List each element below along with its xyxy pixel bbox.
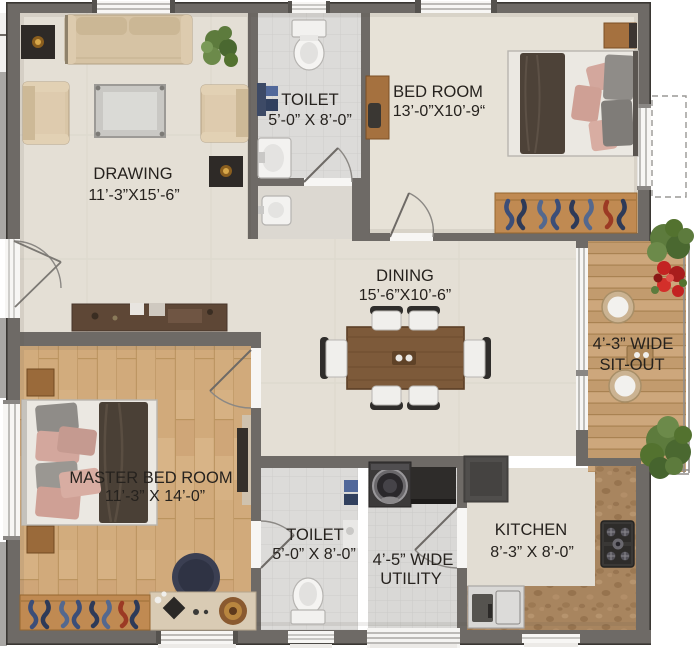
svg-text:4’-3” WIDE: 4’-3” WIDE xyxy=(593,335,674,353)
svg-text:11’-3”X15’-6”: 11’-3”X15’-6” xyxy=(88,187,179,204)
svg-text:DINING: DINING xyxy=(376,267,434,285)
svg-text:BED ROOM: BED ROOM xyxy=(393,83,483,101)
svg-text:5’-0” X 8’-0”: 5’-0” X 8’-0” xyxy=(268,112,352,129)
svg-text:11’-3” X 14’-0”: 11’-3” X 14’-0” xyxy=(105,488,205,505)
svg-text:MASTER BED ROOM: MASTER BED ROOM xyxy=(69,469,232,487)
svg-text:5’-0” X 8’-0”: 5’-0” X 8’-0” xyxy=(272,546,356,563)
svg-text:SIT-OUT: SIT-OUT xyxy=(599,356,664,374)
svg-text:TOILET: TOILET xyxy=(281,91,338,109)
svg-text:4’-5” WIDE: 4’-5” WIDE xyxy=(373,551,454,569)
svg-text:TOILET: TOILET xyxy=(286,526,343,544)
svg-text:8’-3” X 8’-0”: 8’-3” X 8’-0” xyxy=(490,544,574,561)
svg-text:15’-6”X10’-6”: 15’-6”X10’-6” xyxy=(359,287,451,304)
svg-text:13’-0”X10’-9“: 13’-0”X10’-9“ xyxy=(393,103,485,120)
svg-text:KITCHEN: KITCHEN xyxy=(495,521,567,539)
svg-text:UTILITY: UTILITY xyxy=(380,570,441,588)
svg-text:DRAWING: DRAWING xyxy=(93,165,172,183)
